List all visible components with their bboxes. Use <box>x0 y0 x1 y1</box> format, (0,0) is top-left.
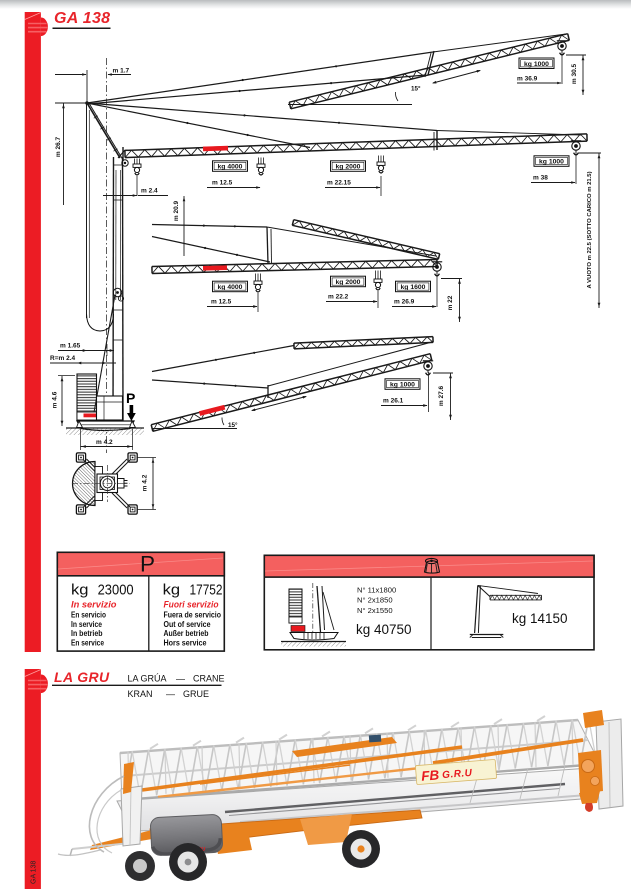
svg-text:m 38: m 38 <box>533 175 548 182</box>
svg-text:15°: 15° <box>228 421 238 429</box>
svg-text:GA 138: GA 138 <box>31 861 38 884</box>
svg-text:m 22: m 22 <box>447 295 454 310</box>
svg-text:m 27.6: m 27.6 <box>438 386 445 407</box>
svg-text:N° 2x1550: N° 2x1550 <box>357 606 393 615</box>
svg-text:P: P <box>126 390 135 406</box>
svg-text:15°: 15° <box>411 85 421 93</box>
svg-text:GRUE: GRUE <box>183 689 209 699</box>
svg-text:kg 14150: kg 14150 <box>512 611 568 626</box>
svg-text:LA GRÚA: LA GRÚA <box>128 674 167 684</box>
svg-text:kg: kg <box>71 582 89 599</box>
svg-text:kg 2000: kg 2000 <box>336 164 361 171</box>
svg-text:m 4.6: m 4.6 <box>52 391 59 408</box>
svg-text:kg 1000: kg 1000 <box>524 61 549 68</box>
svg-text:m 26.1: m 26.1 <box>383 398 404 405</box>
svg-text:m 2.4: m 2.4 <box>141 188 158 195</box>
svg-text:kg 1000: kg 1000 <box>390 382 415 389</box>
svg-text:Fuori servizio: Fuori servizio <box>164 600 219 610</box>
svg-text:kg 4000: kg 4000 <box>218 164 243 171</box>
svg-text:LA GRU: LA GRU <box>54 669 110 685</box>
svg-text:m 1.7: m 1.7 <box>113 68 130 75</box>
svg-text:m 22.15: m 22.15 <box>327 180 351 187</box>
svg-text:kg: kg <box>163 582 181 599</box>
svg-text:In servizio: In servizio <box>71 600 117 610</box>
svg-text:Fuera de servicio: Fuera de servicio <box>164 611 222 620</box>
svg-text:Hors service: Hors service <box>164 638 208 647</box>
svg-text:kg 2000: kg 2000 <box>336 279 361 286</box>
svg-text:P: P <box>140 552 155 577</box>
svg-text:In service: In service <box>71 620 103 629</box>
svg-text:KRAN: KRAN <box>128 689 153 699</box>
svg-text:m 20.9: m 20.9 <box>173 201 180 222</box>
svg-text:m 30.5: m 30.5 <box>571 64 578 85</box>
svg-text:m 12.5: m 12.5 <box>211 299 232 306</box>
svg-text:m 12.5: m 12.5 <box>212 180 233 187</box>
svg-text:m 36.9: m 36.9 <box>517 76 538 83</box>
svg-text:R=m 2.4: R=m 2.4 <box>50 355 75 362</box>
svg-text:—: — <box>176 674 185 684</box>
svg-text:m 4.2: m 4.2 <box>96 439 113 446</box>
svg-text:kg 1600: kg 1600 <box>401 284 426 291</box>
svg-text:N° 11x1800: N° 11x1800 <box>357 585 396 594</box>
svg-text:In betrieb: In betrieb <box>71 629 103 638</box>
svg-text:FB: FB <box>421 767 440 783</box>
svg-text:En servicio: En servicio <box>71 611 106 620</box>
svg-text:En service: En service <box>71 638 105 647</box>
svg-text:kg 1000: kg 1000 <box>539 159 564 166</box>
svg-text:kg 40750: kg 40750 <box>356 622 412 637</box>
svg-text:m 26.7: m 26.7 <box>55 137 62 158</box>
svg-text:m 1.65: m 1.65 <box>60 343 81 350</box>
svg-text:A VUOTO m 22.5 (SOTTO CAR: A VUOTO m 22.5 (SOTTO CARICO m 21.5) <box>587 171 593 288</box>
svg-text:Außer betrieb: Außer betrieb <box>164 629 209 638</box>
svg-text:GA 138: GA 138 <box>54 10 110 27</box>
svg-text:m 26.9: m 26.9 <box>394 299 415 306</box>
svg-text:N° 2x1850: N° 2x1850 <box>357 596 393 605</box>
svg-text:kg 4000: kg 4000 <box>218 284 243 291</box>
svg-text:—: — <box>166 689 175 699</box>
svg-text:CRANE: CRANE <box>193 674 225 684</box>
svg-text:m 22.2: m 22.2 <box>328 294 349 301</box>
svg-text:17752: 17752 <box>190 582 223 599</box>
svg-text:Out of service: Out of service <box>164 620 212 629</box>
svg-text:23000: 23000 <box>98 582 134 599</box>
svg-text:m 4.2: m 4.2 <box>142 474 149 491</box>
